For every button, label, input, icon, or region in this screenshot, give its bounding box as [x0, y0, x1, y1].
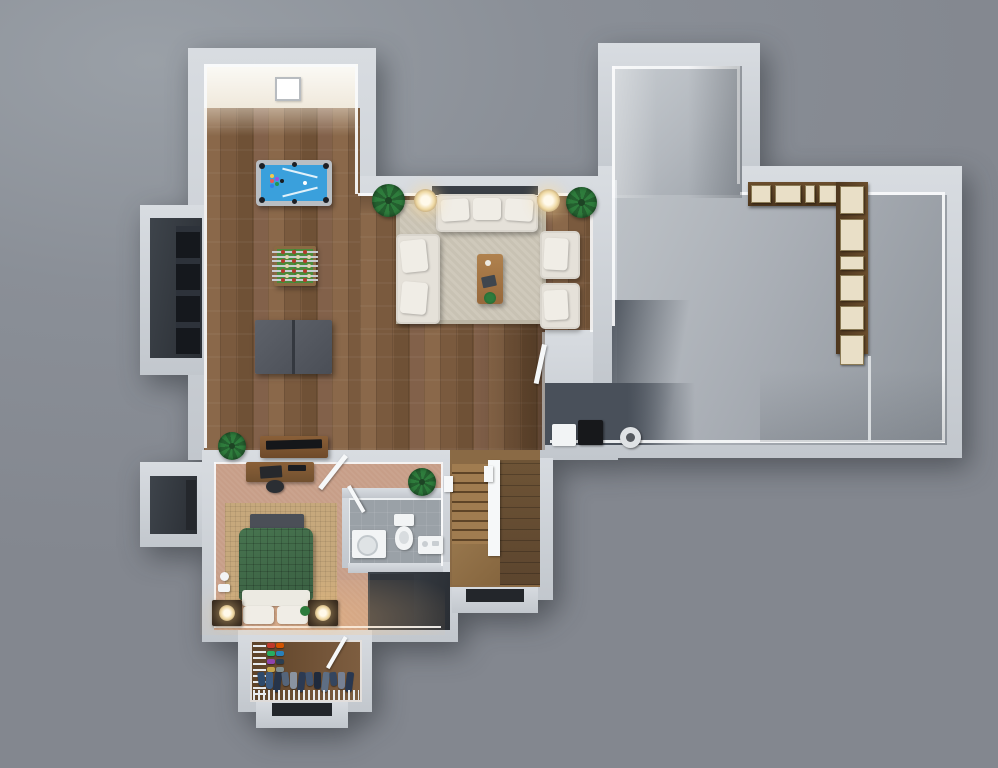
pool-ball — [275, 182, 279, 186]
foosball-player — [292, 278, 296, 282]
storage-box — [840, 256, 864, 270]
stair-tread — [452, 472, 488, 474]
clothes-item — [290, 672, 297, 689]
stairs-window-well-opening — [466, 589, 524, 602]
foosball-player — [303, 250, 307, 254]
stair-tread — [452, 501, 488, 503]
storage-nook-lower-window — [186, 480, 196, 530]
sofa-cushion — [440, 198, 469, 222]
pool-ball — [270, 174, 274, 178]
floor-decor — [218, 584, 230, 592]
baseboard — [355, 66, 358, 194]
pool-ball — [275, 177, 279, 181]
storage-box — [840, 335, 864, 365]
pool-pocket — [259, 197, 265, 203]
floor-decor — [220, 572, 229, 581]
pool-pocket — [323, 163, 329, 169]
wall-frame-decor — [275, 77, 301, 101]
foosball-player — [303, 259, 307, 263]
foosball-rod — [272, 251, 318, 253]
baseboard — [214, 626, 441, 628]
stair-tread — [452, 539, 488, 541]
bedroom-desk — [246, 462, 314, 482]
baseboard — [590, 196, 593, 332]
desk-monitor — [288, 465, 306, 471]
baseboard — [550, 440, 945, 443]
ping-pong-table — [255, 320, 332, 374]
building-plan — [0, 0, 998, 768]
clothes-item — [281, 672, 290, 687]
potted-plant — [408, 468, 436, 496]
paint-roll — [620, 427, 641, 448]
shelving-top-run — [748, 182, 844, 206]
foosball-rod — [272, 279, 318, 281]
closet-window-well-opening — [272, 703, 332, 716]
stair-tread — [452, 520, 488, 522]
office-chair — [266, 480, 284, 493]
baseboard — [612, 66, 615, 326]
ping-pong-half — [255, 320, 292, 374]
storage-box — [775, 185, 801, 203]
coffee-table-bowl — [485, 260, 491, 266]
nightstand-lamp — [219, 605, 235, 621]
clothes-item — [329, 672, 338, 687]
loveseat — [396, 234, 440, 324]
clothes-item — [314, 672, 321, 689]
storage-box — [751, 185, 771, 203]
storage-room-floor-main — [612, 195, 947, 445]
foosball-rod — [272, 265, 318, 267]
hanging-clothes — [258, 672, 358, 690]
baseboard — [204, 66, 207, 448]
floor-plan-render — [0, 0, 998, 768]
foosball-player — [303, 269, 307, 273]
under-stair-storage-inner — [370, 574, 414, 628]
sofa-cushion — [504, 198, 533, 222]
clothes-item — [338, 672, 345, 689]
newel-post — [444, 476, 453, 492]
foosball-player — [307, 255, 311, 259]
coffee-table — [477, 254, 503, 304]
foosball-rod — [272, 270, 318, 272]
foosball-rod — [272, 275, 318, 277]
pool-pocket — [323, 197, 329, 203]
nightstand-plant — [300, 606, 310, 616]
foosball-player — [292, 250, 296, 254]
bathroom-vanity — [418, 536, 443, 554]
shoe-item — [276, 651, 284, 656]
clothes-item — [266, 672, 273, 689]
coffee-table-tray — [481, 275, 497, 289]
ping-pong-half — [295, 320, 332, 374]
washer — [352, 530, 386, 558]
potted-plant — [218, 432, 246, 460]
white-storage-box — [552, 424, 576, 446]
shelving-right-run — [836, 182, 868, 354]
storage-box — [840, 186, 864, 214]
laptop — [260, 465, 283, 479]
foosball-player — [281, 259, 285, 263]
closet-wire-shelf — [253, 690, 359, 700]
sofa-cushion — [400, 281, 429, 315]
stair-tread — [452, 491, 488, 493]
coffee-table-plant — [484, 292, 496, 304]
sofa-cushion — [399, 239, 428, 274]
wall-pipe — [868, 356, 871, 442]
foosball-rod — [272, 256, 318, 258]
foosball-player — [292, 269, 296, 273]
table-lamp — [414, 189, 437, 212]
black-storage-box — [578, 420, 603, 445]
foosball-player — [292, 259, 296, 263]
toilet-tank — [394, 514, 414, 526]
foosball-table — [274, 246, 316, 286]
foosball-player — [285, 274, 289, 278]
foosball-player — [285, 255, 289, 259]
storage-room-floor-top — [612, 66, 742, 198]
foosball-player — [296, 255, 300, 259]
staircase — [450, 450, 540, 587]
clothes-item — [257, 672, 266, 687]
nightstand — [308, 600, 338, 626]
shoe-item — [267, 643, 275, 648]
foosball-player — [296, 264, 300, 268]
storage-box — [819, 185, 837, 203]
pool-ball — [270, 179, 274, 183]
table-lamp — [537, 189, 560, 212]
pool-ball — [280, 179, 284, 183]
foosball-player — [281, 250, 285, 254]
toilet-bowl — [395, 526, 413, 550]
chair-cushion — [543, 289, 569, 320]
shoe-item — [267, 659, 275, 664]
foosball-rod — [272, 260, 318, 262]
pool-pocket — [259, 163, 265, 169]
stair-tread — [452, 510, 488, 512]
ping-pong-net — [292, 320, 295, 374]
foosball-rods — [277, 249, 313, 283]
family-area-floor — [360, 330, 545, 450]
foosball-player — [281, 278, 285, 282]
storage-box — [840, 275, 864, 301]
pool-pocket — [292, 199, 297, 204]
stair-flight-upper — [500, 460, 540, 585]
armchair — [540, 231, 580, 279]
shelf-boxes — [751, 185, 841, 203]
toilet — [394, 514, 414, 552]
tv-console — [260, 436, 328, 458]
pool-ball-rack — [270, 174, 284, 190]
chair-cushion — [543, 237, 569, 270]
stair-flight-down — [452, 464, 488, 544]
sofa-cushion — [473, 198, 501, 220]
armchair — [540, 283, 580, 329]
shoe-item — [276, 643, 284, 648]
bed-sheet-fold — [242, 590, 310, 606]
newel-post — [484, 466, 493, 482]
foosball-player — [303, 278, 307, 282]
storage-box — [805, 185, 815, 203]
shoe-item — [267, 651, 275, 656]
three-seat-sofa — [436, 194, 538, 232]
foosball-player — [285, 264, 289, 268]
nightstand-lamp — [315, 605, 331, 621]
pool-ball — [270, 184, 274, 188]
cue-ball — [303, 181, 307, 185]
stair-tread — [452, 529, 488, 531]
storage-nook-upper-shelf — [176, 226, 200, 354]
foosball-player — [307, 274, 311, 278]
shoe-item — [276, 659, 284, 664]
baseboard — [942, 195, 945, 443]
pool-pocket — [292, 162, 297, 167]
shelf-boxes — [840, 186, 864, 350]
foosball-player — [307, 264, 311, 268]
storage-box — [840, 219, 864, 251]
storage-box — [840, 306, 864, 330]
bed-pillow — [243, 606, 274, 624]
baseboard — [204, 64, 356, 67]
foosball-player — [296, 274, 300, 278]
pool-table — [256, 160, 332, 206]
nightstand — [212, 600, 242, 626]
baseboard — [612, 66, 740, 69]
potted-plant — [566, 187, 597, 218]
potted-plant — [372, 184, 405, 217]
clothes-item — [305, 672, 314, 687]
wall-bathroom-left — [342, 488, 349, 568]
foosball-player — [281, 269, 285, 273]
stair-tread — [452, 482, 488, 484]
baseboard — [737, 66, 740, 184]
tv-screen — [266, 439, 322, 449]
